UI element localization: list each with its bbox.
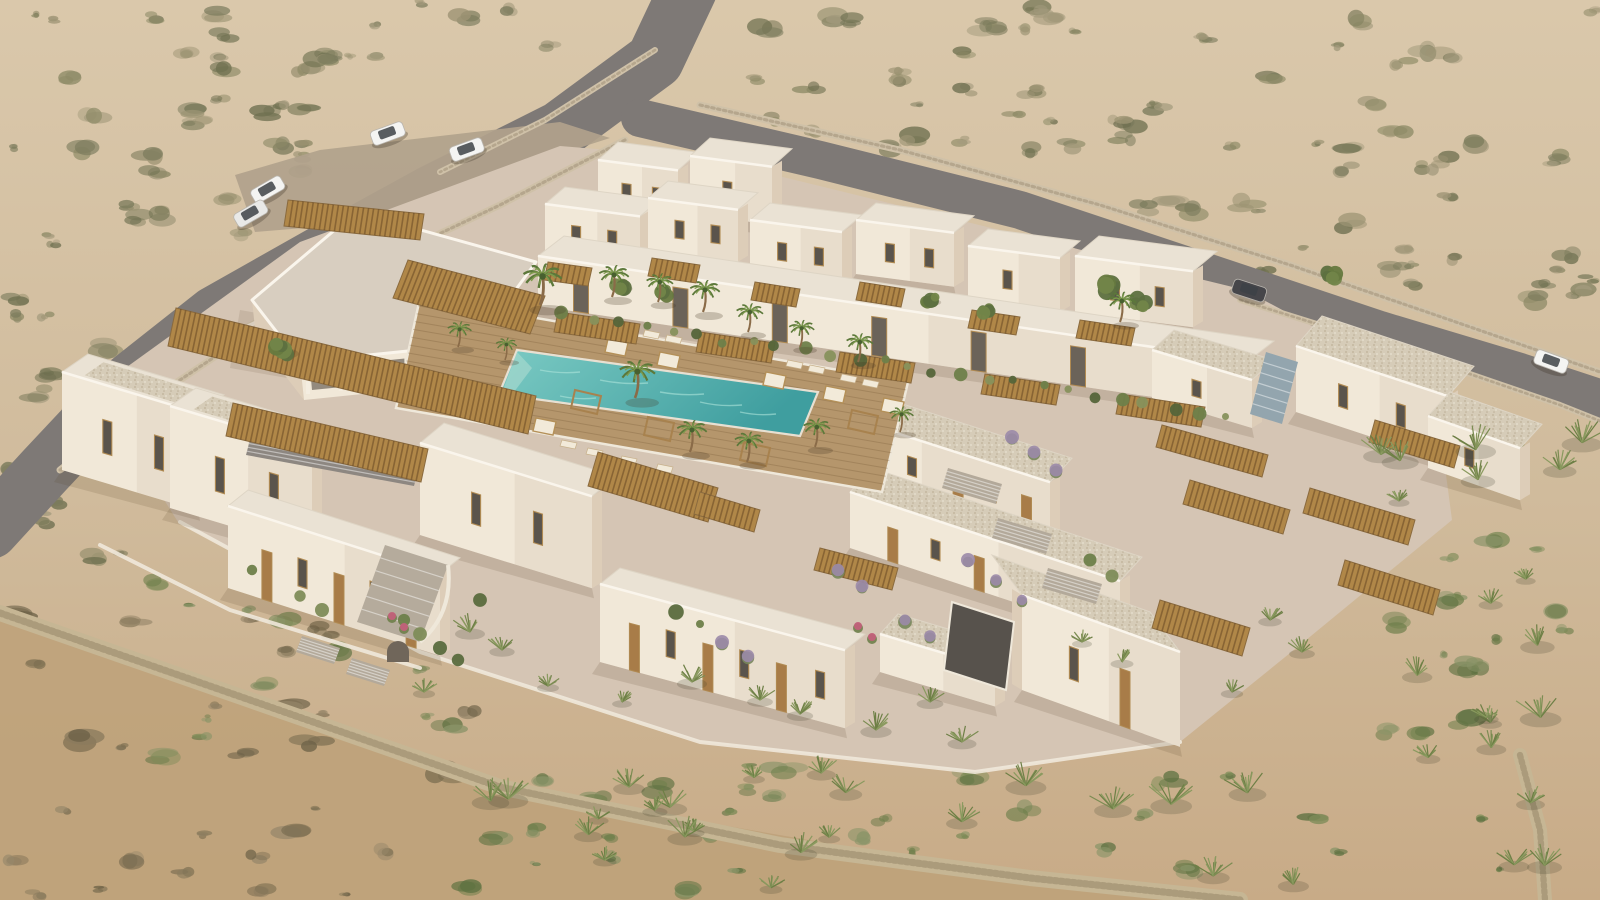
screenshot-root bbox=[0, 0, 1600, 900]
aerial-resort-render bbox=[0, 0, 1600, 900]
